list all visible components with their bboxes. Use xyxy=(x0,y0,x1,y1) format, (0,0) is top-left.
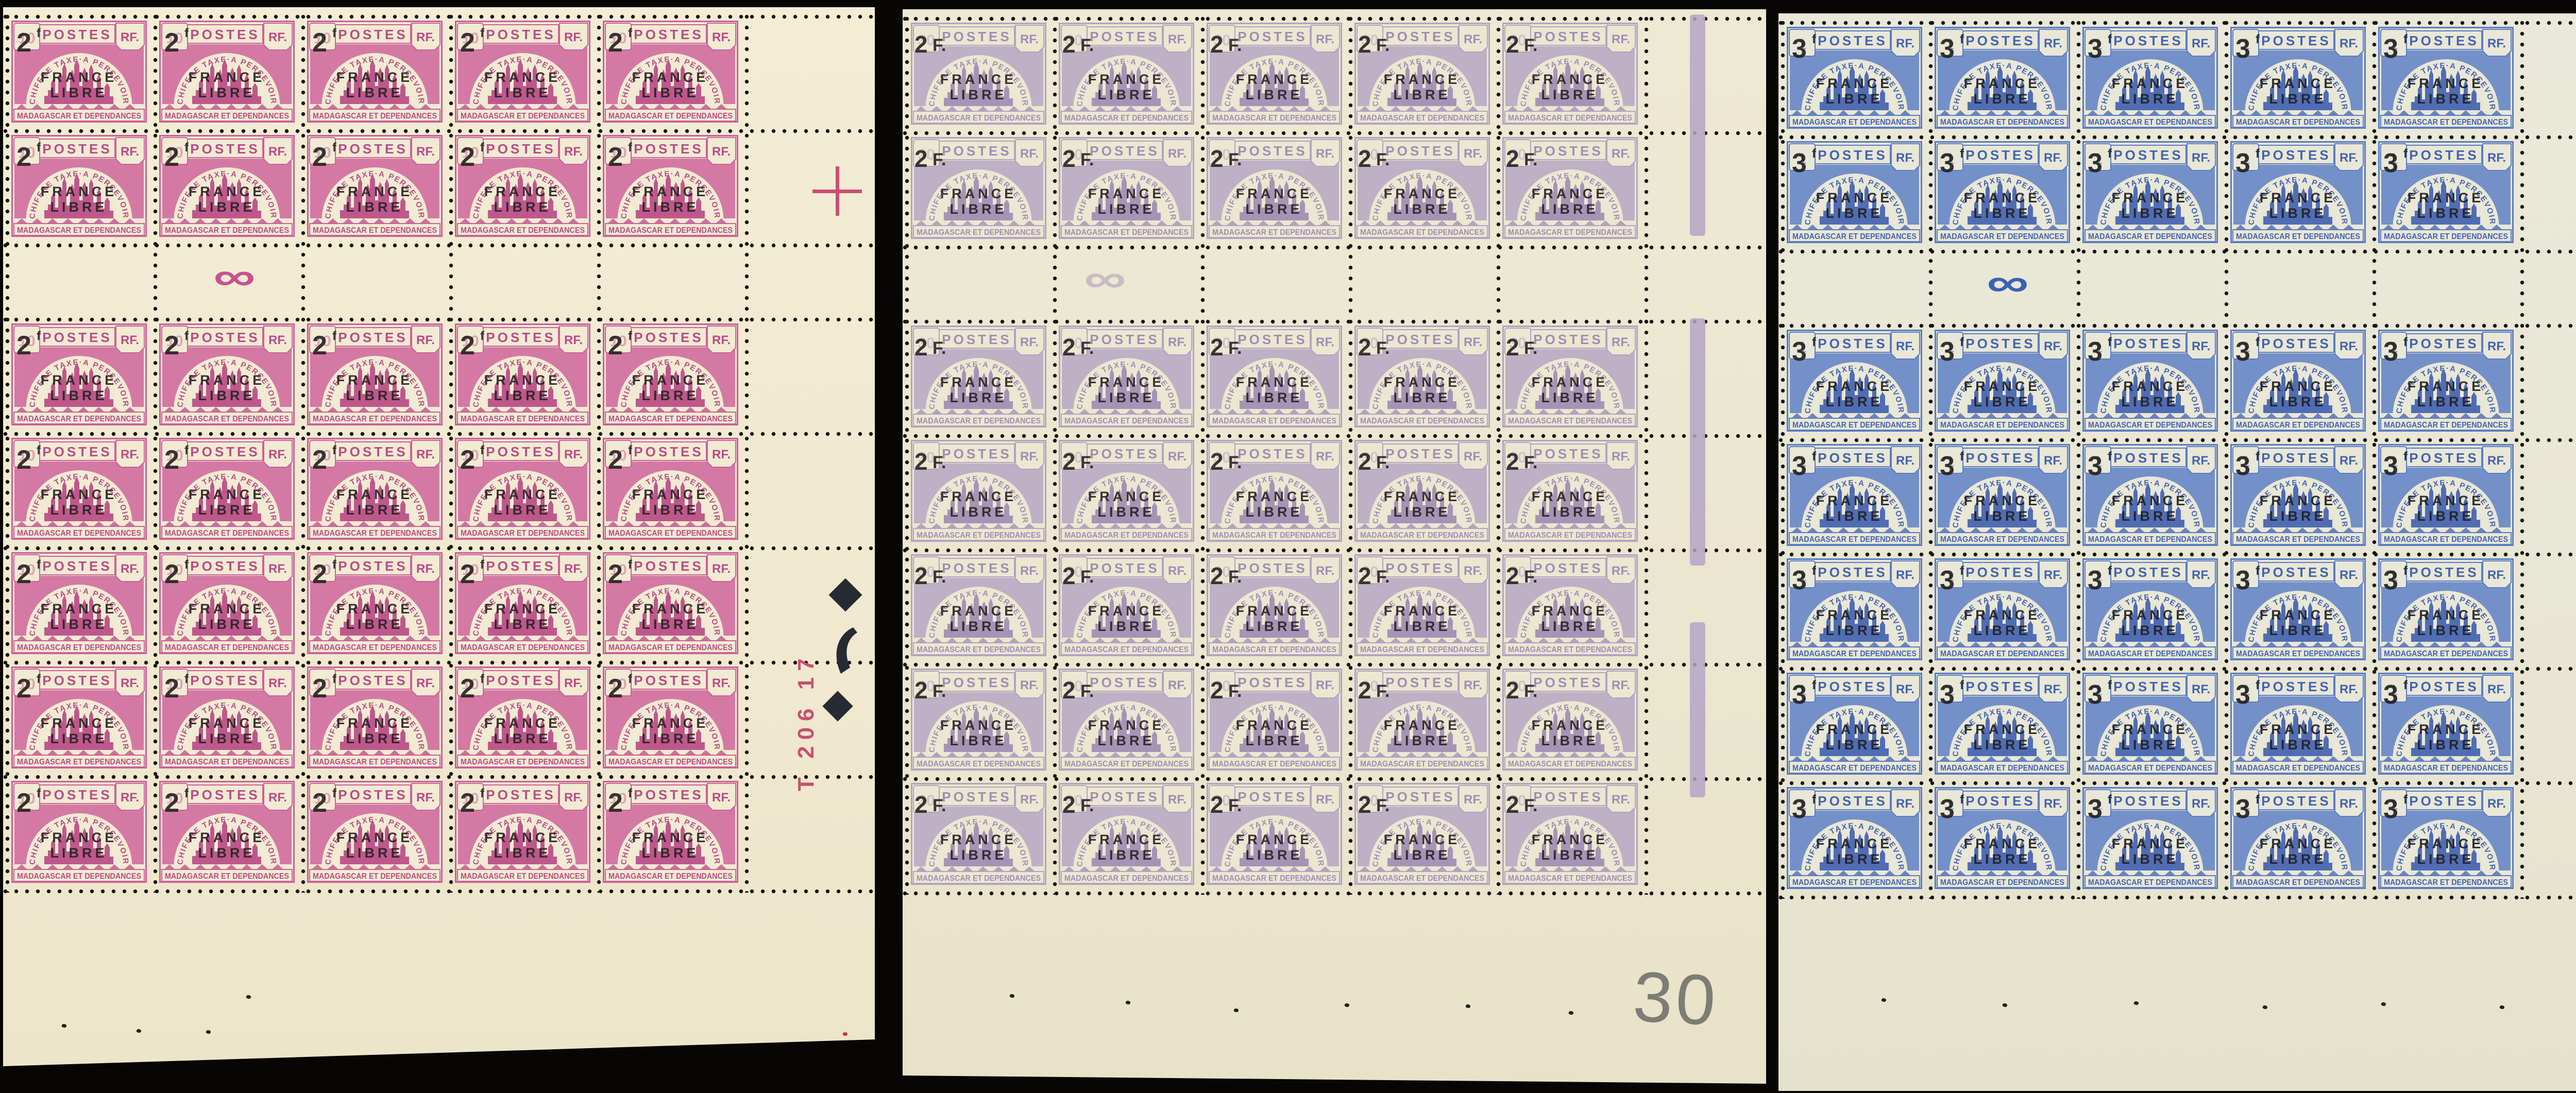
perforation-row xyxy=(1778,21,2576,25)
pencil-note: 30 xyxy=(1631,956,1721,1042)
ink-speck xyxy=(206,1030,211,1035)
ink-speck xyxy=(2262,1005,2268,1010)
perforation-layer xyxy=(903,9,1766,1084)
perforation-column xyxy=(597,14,601,893)
perforation-row xyxy=(903,319,1766,324)
perforation-row xyxy=(1778,323,2576,328)
ink-speck xyxy=(1881,998,1887,1003)
gutter-millesime-mark: ∞ xyxy=(1987,265,2029,301)
stamp-sheet-rose: CHIFFRE TAXE·A PERCEVOIR POSTES 10 RF. M… xyxy=(3,7,875,1066)
registration-cross-mark xyxy=(812,166,862,216)
perforation-column xyxy=(2224,21,2229,899)
ink-speck xyxy=(61,1023,67,1029)
perforation-column xyxy=(1200,16,1205,895)
perforation-row xyxy=(903,16,1766,21)
ink-speck xyxy=(2381,1002,2386,1007)
perforation-column xyxy=(1348,16,1353,895)
perforation-column xyxy=(5,14,10,893)
perforation-layer xyxy=(1778,13,2576,1091)
perforation-column xyxy=(1644,16,1649,895)
perforation-column xyxy=(2076,21,2081,899)
plate-number: T 206 17 xyxy=(793,621,826,791)
ink-speck xyxy=(1568,1011,1574,1016)
margin-crescent-mark xyxy=(823,624,859,680)
perforation-column xyxy=(1053,16,1057,895)
ink-speck xyxy=(2002,1003,2008,1008)
gutter-millesime-mark: ∞ xyxy=(213,259,256,295)
stamp-sheets-photo: CHIFFRE TAXE·A PERCEVOIR POSTES 10 RF. M… xyxy=(0,0,2576,1093)
margin-color-bar xyxy=(1690,622,1705,797)
perforation-column xyxy=(905,16,909,895)
perforation-row xyxy=(1778,438,2576,442)
perforation-row xyxy=(903,434,1766,438)
ink-speck xyxy=(136,1029,142,1034)
perforation-column xyxy=(1496,16,1501,895)
perforation-row xyxy=(1778,135,2576,140)
perforation-column xyxy=(744,14,749,893)
ink-speck xyxy=(246,995,251,1000)
perforation-column xyxy=(2520,21,2524,899)
perforation-row xyxy=(1778,667,2576,671)
ink-speck xyxy=(842,1032,848,1037)
perforation-column xyxy=(1781,21,1785,899)
perforation-row xyxy=(1778,895,2576,900)
ink-speck xyxy=(1125,1000,1131,1005)
ink-speck xyxy=(1233,1008,1239,1013)
ink-speck xyxy=(2133,1001,2139,1006)
gutter-millesime-mark: ∞ xyxy=(1084,261,1126,297)
perforation-row xyxy=(1778,552,2576,557)
perforation-row xyxy=(1778,249,2576,254)
perforation-column xyxy=(301,14,306,893)
perforation-column xyxy=(2372,21,2377,899)
perforation-row xyxy=(1778,781,2576,785)
ink-speck xyxy=(1009,994,1015,999)
perforation-layer xyxy=(3,7,875,1066)
perforation-row xyxy=(903,777,1766,781)
perforation-row xyxy=(903,662,1766,667)
stamp-sheet-blue: CHIFFRE TAXE·A PERCEVOIR POSTES 1 RF. MA… xyxy=(1778,13,2576,1091)
perforation-row xyxy=(903,891,1766,896)
margin-color-bar xyxy=(1690,14,1705,236)
margin-color-bar xyxy=(1690,318,1705,566)
perforation-column xyxy=(1928,21,1933,899)
ink-speck xyxy=(2499,1005,2505,1010)
ink-speck xyxy=(1344,1003,1350,1008)
perforation-column xyxy=(153,14,158,893)
perforation-row xyxy=(903,548,1766,553)
ink-speck xyxy=(1465,1004,1471,1009)
perforation-row xyxy=(903,245,1766,250)
perforation-column xyxy=(449,14,453,893)
perforation-row xyxy=(903,131,1766,135)
stamp-sheet-lilac: CHIFFRE TAXE·A PERCEVOIR POSTES 30 RF. M… xyxy=(903,9,1766,1084)
